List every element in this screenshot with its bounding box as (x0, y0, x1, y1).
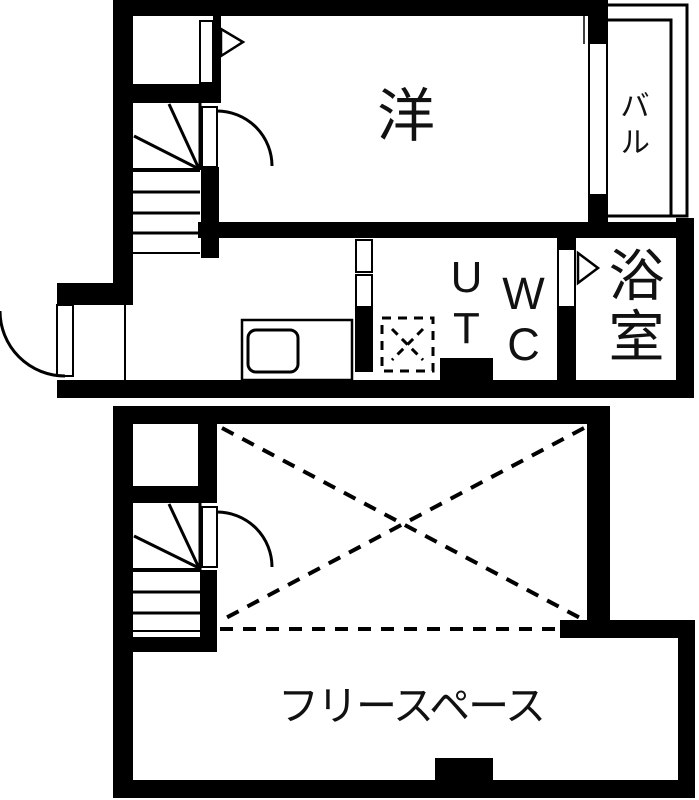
kitchen-sink (248, 330, 298, 372)
bathroom-door (558, 249, 598, 307)
door-swing-flag-icon (221, 29, 243, 56)
washing-machine-space (382, 318, 433, 371)
void-dashed-x (220, 428, 584, 629)
label-western-room: 洋 (377, 88, 435, 146)
upper-closet-door (200, 21, 243, 83)
door-swing-flag-icon (578, 253, 598, 283)
floor-plan-canvas: 洋 バル UT WC 浴室 フリースペース (0, 0, 699, 800)
door-swing-arc-icon (217, 111, 272, 166)
door-swing-arc-icon (0, 311, 65, 376)
door-swing-arc-icon (217, 512, 272, 567)
kitchen-counter (242, 320, 352, 380)
entrance-door (0, 305, 125, 380)
label-bathroom: 浴室 (604, 246, 660, 368)
label-utility: UT (444, 253, 488, 355)
label-free-space: フリースペース (278, 686, 544, 727)
floor-plan-drawing (0, 0, 699, 800)
utility-divider-door (356, 240, 372, 307)
label-toilet: WC (501, 268, 546, 370)
label-balcony: バル (616, 90, 646, 162)
lower-stairs-door (202, 507, 272, 567)
lower-floor-walls (113, 406, 695, 798)
lower-stairs (133, 503, 200, 631)
upper-room-door (202, 107, 272, 167)
upper-stairs (133, 103, 200, 253)
